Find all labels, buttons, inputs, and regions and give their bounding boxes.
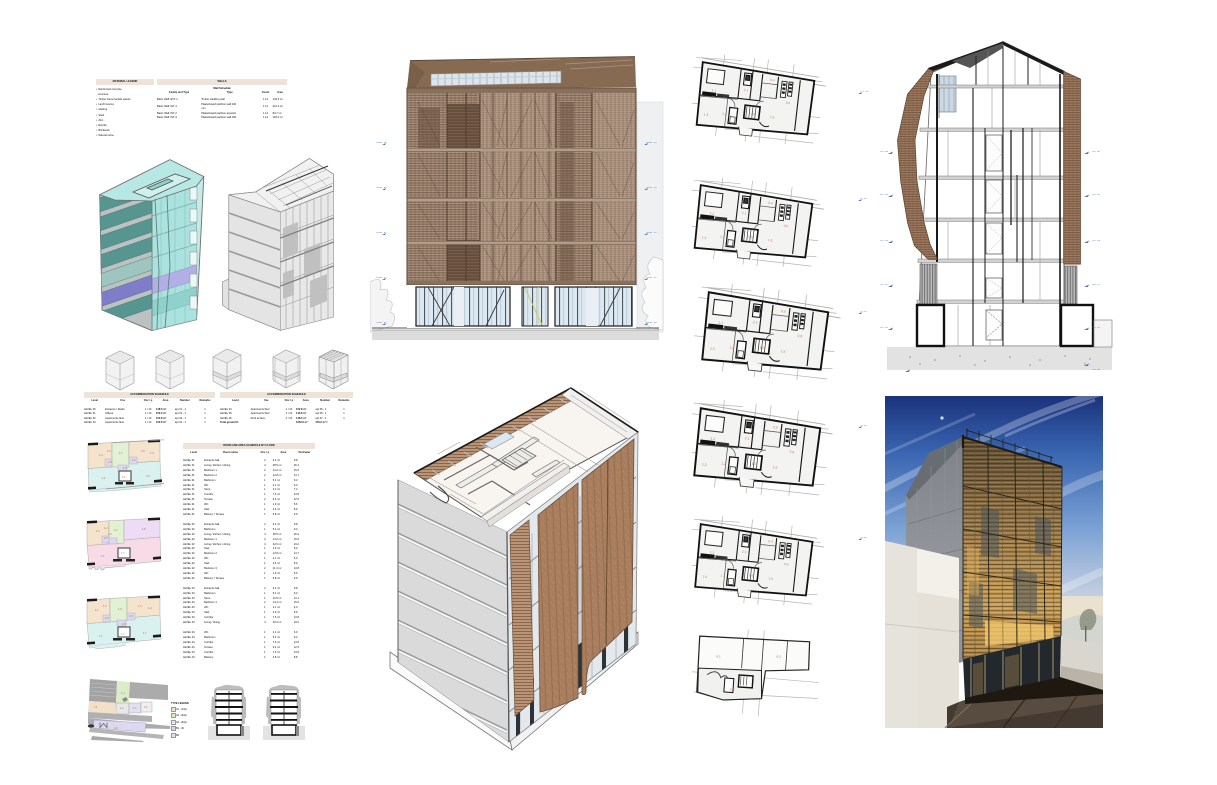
- svg-text:6.1: 6.1: [716, 654, 721, 658]
- svg-text:1.2: 1.2: [132, 458, 136, 462]
- svg-text:1.5: 1.5: [105, 616, 109, 620]
- svg-text:LVL 02: LVL 02: [880, 283, 889, 286]
- svg-text:LVL 01: LVL 01: [1092, 326, 1101, 329]
- svg-text:1.2: 1.2: [121, 691, 125, 695]
- svg-text:LVL 04: LVL 04: [1092, 193, 1101, 196]
- svg-text:1.4: 1.4: [148, 606, 152, 610]
- svg-text:1.7: 1.7: [121, 551, 125, 555]
- svg-text:1.8: 1.8: [122, 622, 126, 626]
- svg-text:1.7: 1.7: [121, 632, 125, 636]
- svg-text:1.6: 1.6: [129, 614, 133, 618]
- svg-text:1.8: 1.8: [142, 527, 146, 531]
- svg-text:6.0: 6.0: [730, 687, 735, 691]
- svg-text:LVL 05: LVL 05: [880, 150, 889, 153]
- svg-text:1.4: 1.4: [104, 526, 108, 530]
- svg-text:LVL 03: LVL 03: [880, 239, 889, 242]
- svg-text:1.1: 1.1: [122, 475, 126, 479]
- svg-text:LVL 01: LVL 01: [880, 326, 889, 329]
- svg-text:1.3: 1.3: [138, 604, 142, 608]
- svg-text:1.6: 1.6: [108, 460, 112, 464]
- svg-text:1.4: 1.4: [99, 453, 103, 457]
- svg-text:LVL 00: LVL 00: [1092, 368, 1101, 371]
- svg-text:1.1: 1.1: [95, 608, 99, 612]
- svg-text:1.0: 1.0: [123, 466, 127, 470]
- svg-text:1.1: 1.1: [102, 476, 106, 480]
- svg-text:LVL 04: LVL 04: [880, 193, 889, 196]
- svg-text:6.2: 6.2: [776, 655, 781, 659]
- svg-text:1.7: 1.7: [119, 451, 123, 455]
- svg-text:1.6: 1.6: [108, 532, 112, 536]
- svg-text:LVL 05: LVL 05: [1092, 150, 1101, 153]
- svg-text:LVL 02: LVL 02: [1092, 283, 1101, 286]
- svg-text:1.5: 1.5: [107, 449, 111, 453]
- svg-text:1.3: 1.3: [96, 529, 100, 533]
- svg-text:1.2: 1.2: [103, 604, 107, 608]
- svg-text:1.1: 1.1: [99, 634, 103, 638]
- svg-text:1.0: 1.0: [118, 607, 122, 611]
- svg-text:1.5: 1.5: [104, 536, 108, 540]
- svg-text:1.3: 1.3: [150, 451, 154, 455]
- svg-text:1.2: 1.2: [114, 528, 118, 532]
- svg-text:2.0: 2.0: [146, 474, 150, 478]
- svg-text:LVL 03: LVL 03: [1092, 239, 1101, 242]
- svg-text:1.1: 1.1: [101, 554, 105, 558]
- svg-text:1.8: 1.8: [141, 449, 145, 453]
- svg-text:1.7: 1.7: [143, 631, 147, 635]
